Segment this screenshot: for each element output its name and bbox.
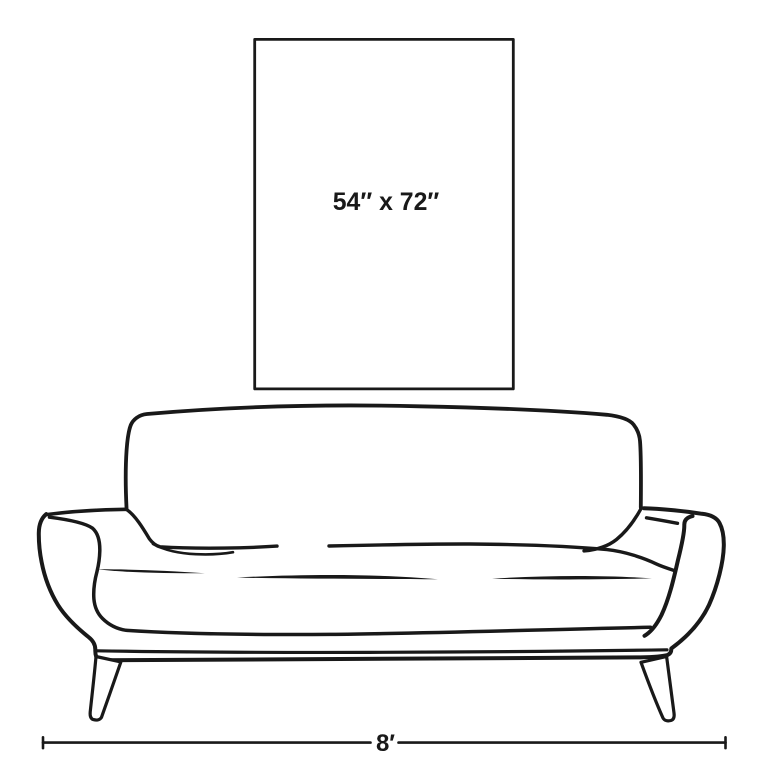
svg-text:54″ x 72″: 54″ x 72″ xyxy=(333,189,440,216)
svg-text:8′: 8′ xyxy=(376,730,395,757)
